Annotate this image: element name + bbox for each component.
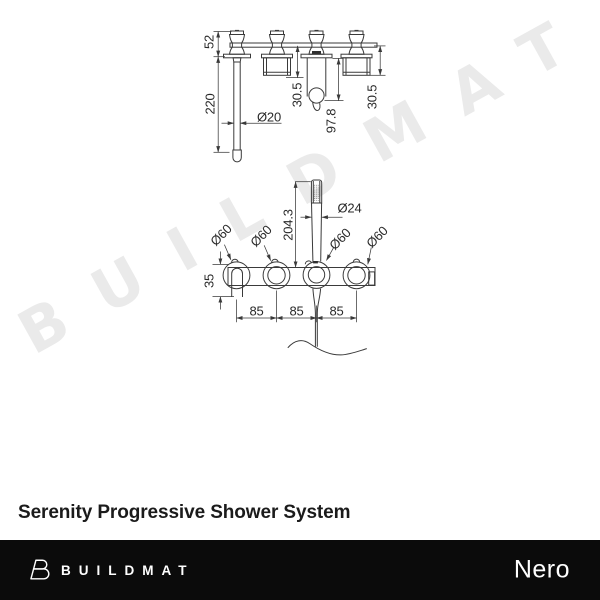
technical-drawing [0, 0, 600, 480]
dim-spout-offset: 35 [201, 273, 216, 287]
dim-handshower-diameter: Ø24 [338, 201, 362, 216]
product-dimension-diagram: BUILDMAT [0, 0, 600, 600]
handle-right-side [341, 30, 372, 75]
holder-flange-front [303, 262, 330, 289]
product-title: Serenity Progressive Shower System [18, 502, 350, 524]
dim-spout-length: 220 [202, 93, 217, 114]
dim-handshower-length: 204.3 [281, 209, 296, 241]
dim-body-height: 52 [201, 35, 216, 49]
shower-hose [288, 289, 367, 355]
handle1-flange-front [263, 262, 290, 289]
spout-outlet-front [232, 268, 243, 297]
buildmat-logo-icon [29, 557, 52, 583]
buildmat-logo: BUILDMAT [29, 557, 194, 583]
dim-centre-spacing-2: 85 [289, 304, 303, 319]
dim-handle-projection-left: 30.5 [290, 82, 305, 107]
break-line [288, 341, 367, 355]
dim-centre-spacing-1: 85 [249, 304, 263, 319]
dim-holder-projection: 97.8 [323, 108, 338, 133]
nero-logo-text: Nero [514, 556, 570, 585]
handshower-front [311, 180, 321, 263]
dim-handle-projection-right: 30.5 [364, 84, 379, 109]
footer-bar: BUILDMAT Nero [0, 540, 600, 600]
handshower-holder-side [301, 30, 332, 111]
handle2-flange-front [343, 262, 370, 289]
spout-flange-front [223, 262, 250, 289]
dim-centre-spacing-3: 85 [329, 304, 343, 319]
buildmat-logo-text: BUILDMAT [61, 563, 194, 578]
spout-side [224, 30, 251, 162]
dim-spout-diameter: Ø20 [257, 109, 281, 124]
mounting-bar-side [230, 43, 377, 47]
handle-left-side [262, 30, 293, 75]
